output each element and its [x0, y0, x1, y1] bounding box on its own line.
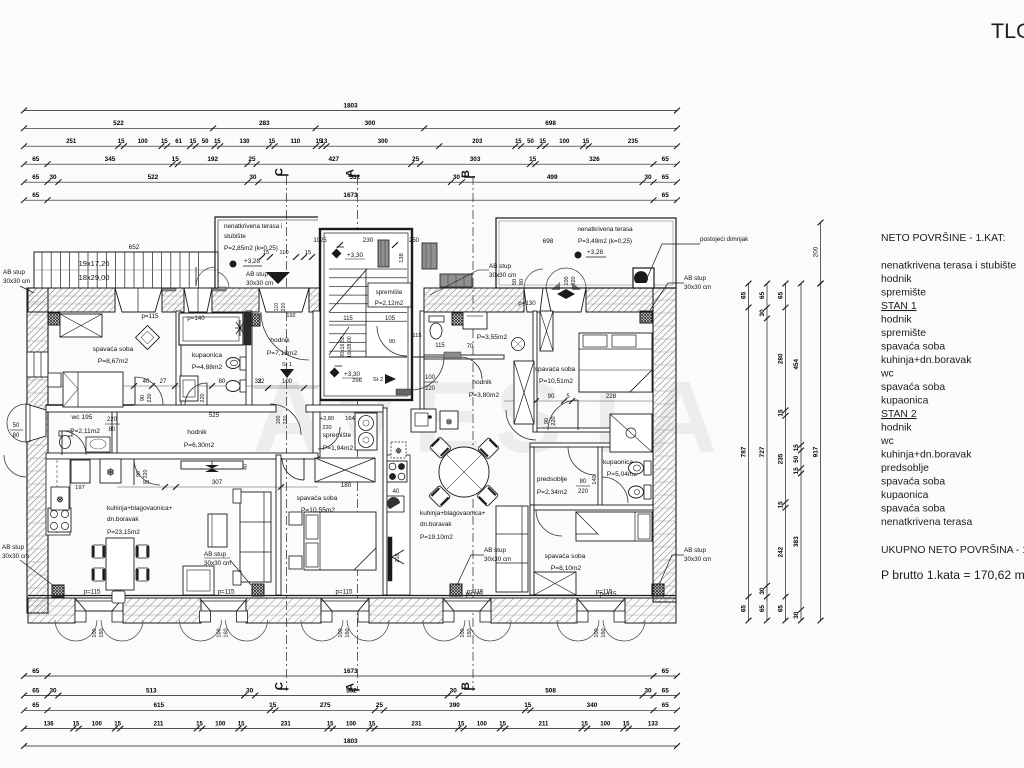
svg-text:25: 25: [376, 702, 384, 709]
svg-text:15: 15: [172, 156, 180, 163]
svg-text:p=140: p=140: [187, 315, 205, 322]
svg-text:15: 15: [529, 156, 537, 163]
svg-text:P=23,15m2: P=23,15m2: [107, 529, 140, 536]
svg-text:231: 231: [411, 721, 422, 727]
svg-text:15: 15: [539, 139, 546, 145]
svg-text:136: 136: [44, 721, 55, 727]
svg-text:spavaća soba: spavaća soba: [881, 342, 945, 353]
svg-text:90: 90: [389, 339, 395, 345]
svg-text:522: 522: [148, 174, 159, 181]
svg-text:kuhinja+blagovaonica+: kuhinja+blagovaonica+: [420, 510, 486, 517]
svg-text:80: 80: [580, 479, 587, 485]
svg-text:160: 160: [99, 628, 105, 637]
svg-text:P=2,34m2: P=2,34m2: [537, 489, 568, 496]
svg-text:15: 15: [793, 467, 800, 475]
svg-text:160: 160: [601, 628, 607, 637]
svg-text:307: 307: [212, 479, 223, 486]
svg-text:110: 110: [290, 139, 300, 145]
svg-text:100: 100: [559, 139, 570, 145]
svg-text:211: 211: [154, 721, 164, 727]
svg-text:326: 326: [589, 156, 600, 163]
svg-text:220: 220: [200, 393, 206, 402]
svg-text:nenatkrivena terasa: nenatkrivena terasa: [881, 517, 972, 528]
svg-text:220: 220: [578, 489, 589, 495]
svg-text:p=115: p=115: [336, 589, 353, 596]
svg-text:100: 100: [460, 628, 466, 637]
svg-text:spremište: spremište: [881, 328, 926, 339]
svg-text:TLOCRT: TLOCRT: [991, 19, 1024, 43]
svg-text:65: 65: [662, 156, 670, 163]
svg-text:698: 698: [543, 238, 554, 245]
svg-text:652: 652: [129, 244, 140, 251]
svg-text:65: 65: [32, 156, 40, 163]
svg-text:15: 15: [190, 139, 197, 145]
svg-text:15: 15: [499, 721, 506, 727]
svg-text:30x30 cm: 30x30 cm: [3, 278, 30, 285]
svg-text:110: 110: [274, 303, 280, 311]
svg-text:220: 220: [425, 386, 436, 392]
svg-text:15: 15: [581, 721, 588, 727]
svg-text:P=3,49m2 (k=0,25): P=3,49m2 (k=0,25): [578, 238, 632, 245]
svg-text:220: 220: [322, 425, 331, 431]
svg-text:25: 25: [412, 156, 420, 163]
svg-text:115: 115: [412, 333, 421, 339]
svg-text:40: 40: [143, 379, 150, 385]
svg-text:340: 340: [587, 702, 598, 709]
svg-text:65: 65: [662, 668, 670, 675]
svg-text:P=3,55m2: P=3,55m2: [477, 334, 508, 341]
svg-text:STAN 2: STAN 2: [881, 409, 917, 420]
svg-text:100: 100: [477, 721, 488, 727]
svg-text:427: 427: [328, 156, 339, 163]
svg-text:30: 30: [759, 309, 766, 317]
svg-text:220: 220: [107, 417, 118, 423]
svg-text:180: 180: [341, 482, 352, 489]
svg-text:65: 65: [741, 605, 748, 613]
svg-text:15: 15: [515, 139, 522, 145]
svg-text:15: 15: [793, 444, 800, 452]
svg-text:100: 100: [338, 628, 344, 637]
svg-text:spavaća soba: spavaća soba: [93, 346, 134, 353]
svg-text:hodnik: hodnik: [187, 429, 207, 436]
svg-text:❅: ❅: [395, 446, 403, 456]
svg-text:30: 30: [644, 174, 652, 181]
svg-text:40: 40: [393, 489, 400, 495]
svg-text:p=115: p=115: [466, 591, 483, 598]
svg-text:P=8,10m2: P=8,10m2: [551, 565, 582, 572]
svg-text:p=115: p=115: [84, 589, 101, 596]
svg-text:100: 100: [215, 721, 226, 727]
svg-text:242: 242: [778, 546, 785, 557]
svg-text:15: 15: [269, 702, 277, 709]
svg-text:283: 283: [259, 120, 270, 127]
svg-text:13: 13: [321, 139, 328, 145]
svg-text:30x30 cm: 30x30 cm: [684, 284, 711, 291]
svg-text:p=115: p=115: [600, 591, 617, 598]
svg-text:16x28,00: 16x28,00: [347, 336, 353, 357]
svg-text:+3,30: +3,30: [347, 252, 363, 259]
svg-text:231: 231: [281, 721, 292, 727]
svg-text:30: 30: [49, 174, 57, 181]
svg-text:522: 522: [113, 120, 124, 127]
svg-text:50: 50: [512, 279, 518, 285]
svg-text:hodnik: hodnik: [881, 274, 912, 285]
svg-text:90: 90: [140, 395, 146, 401]
svg-text:p=115: p=115: [142, 313, 159, 320]
svg-text:30: 30: [246, 687, 254, 694]
svg-text:1025: 1025: [313, 238, 327, 244]
svg-text:160: 160: [467, 628, 473, 637]
svg-text:25: 25: [248, 156, 256, 163]
svg-text:917: 917: [813, 446, 820, 457]
svg-text:787: 787: [741, 446, 748, 457]
svg-text:100: 100: [600, 721, 611, 727]
svg-text:138: 138: [399, 253, 405, 263]
svg-text:hodnik: hodnik: [472, 379, 492, 386]
svg-text:65: 65: [759, 291, 766, 299]
svg-text:1673: 1673: [343, 192, 358, 199]
svg-text:100: 100: [564, 276, 570, 285]
svg-text:130: 130: [239, 139, 250, 145]
svg-text:65: 65: [662, 174, 670, 181]
svg-text:P=2,85m2 (k=0,25): P=2,85m2 (k=0,25): [224, 245, 278, 252]
svg-text:275: 275: [320, 702, 331, 709]
svg-text:32: 32: [255, 379, 262, 385]
svg-text:wc: wc: [880, 436, 894, 447]
svg-text:1803: 1803: [343, 102, 358, 109]
svg-text:P=10,51m2: P=10,51m2: [539, 378, 573, 385]
svg-text:30x30 cm: 30x30 cm: [2, 553, 29, 560]
svg-text:dn.boravak: dn.boravak: [107, 516, 139, 523]
svg-text:+3,30: +3,30: [344, 371, 360, 378]
svg-text:18x29,00: 18x29,00: [79, 273, 110, 282]
svg-text:spavaća soba: spavaća soba: [297, 495, 338, 502]
svg-text:160: 160: [224, 628, 230, 637]
svg-text:220: 220: [147, 393, 153, 402]
svg-text:P=1,94m2: P=1,94m2: [323, 445, 354, 452]
svg-text:235: 235: [628, 139, 639, 145]
svg-text:100: 100: [217, 628, 223, 637]
svg-text:235: 235: [778, 453, 785, 464]
svg-text:250: 250: [409, 238, 420, 244]
svg-text:P=8,67m2: P=8,67m2: [98, 358, 129, 365]
svg-text:15: 15: [583, 139, 590, 145]
svg-text:65: 65: [778, 605, 785, 613]
svg-text:50: 50: [202, 139, 209, 145]
svg-text:AB stup: AB stup: [684, 547, 707, 554]
svg-text:525: 525: [209, 412, 220, 419]
svg-text:228: 228: [606, 393, 617, 400]
svg-text:203: 203: [472, 139, 483, 145]
svg-text:30x30 cm: 30x30 cm: [489, 272, 516, 279]
svg-text:30: 30: [759, 587, 766, 595]
svg-text:192: 192: [207, 156, 218, 163]
svg-text:AB stup: AB stup: [246, 271, 269, 278]
svg-text:727: 727: [759, 446, 766, 457]
svg-text:100: 100: [92, 721, 103, 727]
svg-text:kupaonica: kupaonica: [192, 352, 222, 359]
svg-text:wc 195: wc 195: [71, 414, 93, 421]
svg-text:AB stup: AB stup: [489, 263, 512, 270]
svg-text:stubište: stubište: [224, 233, 246, 240]
svg-text:AB stup: AB stup: [3, 269, 26, 276]
svg-text:hodnik: hodnik: [881, 315, 912, 326]
svg-text:p=115: p=115: [218, 589, 235, 596]
svg-text:50: 50: [527, 139, 534, 145]
svg-text:20x16,50: 20x16,50: [340, 336, 346, 357]
svg-text:predsoblje: predsoblje: [537, 476, 568, 483]
svg-text:615: 615: [153, 702, 164, 709]
svg-text:15: 15: [196, 721, 203, 727]
svg-text:454: 454: [793, 359, 800, 370]
svg-text:230: 230: [363, 237, 374, 244]
svg-text:80: 80: [219, 379, 226, 385]
svg-text:15: 15: [458, 721, 465, 727]
svg-text:80: 80: [13, 433, 20, 439]
svg-text:15: 15: [238, 721, 245, 727]
svg-text:nenatkrivena terasa i stubište: nenatkrivena terasa i stubište: [881, 261, 1016, 272]
svg-text:30x30 cm: 30x30 cm: [684, 556, 711, 563]
svg-text:15: 15: [778, 501, 785, 509]
svg-text:115: 115: [435, 343, 445, 349]
svg-text:p=130: p=130: [518, 300, 536, 307]
svg-text:197: 197: [75, 485, 85, 491]
svg-text:30: 30: [644, 687, 652, 694]
svg-text:+3,28: +3,28: [244, 258, 260, 265]
svg-text:140: 140: [592, 475, 598, 484]
svg-text:30x30 cm: 30x30 cm: [484, 556, 511, 563]
svg-text:65: 65: [32, 192, 40, 199]
svg-text:nenatkrivena terasa: nenatkrivena terasa: [577, 226, 633, 233]
svg-text:390: 390: [449, 702, 460, 709]
svg-text:65: 65: [32, 687, 40, 694]
svg-text:spremište: spremište: [376, 289, 403, 296]
svg-text:160: 160: [345, 628, 351, 637]
svg-text:NETO POVRŠINE - 1.KAT:: NETO POVRŠINE - 1.KAT:: [881, 231, 1005, 244]
svg-text:P=2,11m2: P=2,11m2: [70, 428, 100, 435]
svg-text:hodnik: hodnik: [881, 423, 912, 434]
svg-text:15: 15: [623, 721, 630, 727]
svg-text:dn.boravak: dn.boravak: [420, 521, 452, 528]
svg-text:30: 30: [249, 174, 257, 181]
svg-text:30: 30: [450, 687, 458, 694]
svg-text:AB stup: AB stup: [2, 544, 25, 551]
svg-text:220: 220: [281, 303, 287, 312]
svg-text:40: 40: [243, 464, 249, 470]
svg-text:50: 50: [13, 423, 20, 429]
svg-text:65: 65: [759, 605, 766, 613]
svg-text:P=7,18m2: P=7,18m2: [267, 350, 298, 357]
svg-text:100: 100: [346, 721, 357, 727]
svg-text:80: 80: [109, 427, 116, 433]
svg-text:15: 15: [369, 721, 376, 727]
svg-text:30: 30: [49, 687, 57, 694]
svg-text:65: 65: [741, 291, 748, 299]
svg-text:spavaća soba: spavaća soba: [881, 504, 945, 515]
svg-text:STAN 1: STAN 1: [881, 301, 917, 312]
svg-text:100: 100: [594, 628, 600, 637]
svg-text:15: 15: [161, 139, 168, 145]
svg-text:kuhinja+dn.boravak: kuhinja+dn.boravak: [881, 450, 972, 461]
svg-text:90: 90: [548, 394, 555, 400]
svg-text:100: 100: [282, 379, 293, 385]
svg-text:P=4,88m2: P=4,88m2: [192, 364, 223, 371]
svg-text:30x30 cm: 30x30 cm: [204, 560, 231, 567]
svg-text:19x17,26: 19x17,26: [79, 259, 110, 268]
svg-text:164: 164: [345, 416, 355, 422]
svg-text:spavaća soba: spavaća soba: [881, 477, 945, 488]
svg-text:192: 192: [286, 313, 295, 319]
svg-text:27: 27: [160, 379, 167, 385]
svg-text:133: 133: [648, 721, 659, 727]
svg-text:15: 15: [73, 721, 80, 727]
svg-text:P brutto 1.kata = 170,62 m2: P brutto 1.kata = 170,62 m2: [881, 568, 1024, 582]
svg-text:wc: wc: [880, 369, 894, 380]
svg-text:61: 61: [175, 139, 182, 145]
svg-text:200: 200: [813, 246, 820, 257]
svg-text:50: 50: [793, 455, 800, 463]
svg-text:predsoblje: predsoblje: [881, 463, 929, 474]
svg-text:300: 300: [365, 120, 376, 127]
svg-text:hodnik: hodnik: [270, 337, 290, 344]
svg-text:postojeći dimnjak: postojeći dimnjak: [700, 236, 749, 243]
svg-text:220: 220: [551, 416, 557, 425]
svg-text:65: 65: [662, 687, 670, 694]
svg-text:spavaća soba: spavaća soba: [881, 382, 945, 393]
svg-text:AB stup: AB stup: [484, 547, 507, 554]
svg-text:110: 110: [279, 250, 288, 256]
svg-text:1673: 1673: [343, 668, 358, 675]
svg-text:+3,28: +3,28: [587, 249, 603, 256]
svg-text:65: 65: [32, 702, 40, 709]
svg-text:kupaonica: kupaonica: [881, 396, 929, 407]
svg-text:698: 698: [545, 120, 556, 127]
svg-text:kuhinja+blagovaonica+: kuhinja+blagovaonica+: [107, 505, 173, 512]
svg-text:296: 296: [352, 378, 362, 384]
svg-text:kuhinja+dn.boravak: kuhinja+dn.boravak: [881, 355, 972, 366]
svg-text:kupaonica: kupaonica: [881, 490, 929, 501]
svg-text:100: 100: [92, 628, 98, 637]
svg-text:211: 211: [539, 721, 549, 727]
svg-text:65: 65: [32, 668, 40, 675]
svg-text:❅: ❅: [445, 417, 453, 427]
svg-text:nenatkrivena terasa i: nenatkrivena terasa i: [224, 223, 282, 230]
svg-text:303: 303: [470, 156, 481, 163]
svg-text:90: 90: [136, 471, 142, 477]
svg-text:30: 30: [793, 611, 800, 619]
svg-text:80: 80: [519, 279, 525, 285]
svg-text:❅: ❅: [106, 467, 115, 479]
svg-text:❅: ❅: [56, 495, 64, 506]
svg-text:P=6,30m2: P=6,30m2: [184, 442, 215, 449]
svg-text:spavaća soba: spavaća soba: [545, 553, 586, 560]
svg-text:65: 65: [662, 192, 670, 199]
svg-text:218: 218: [395, 553, 401, 562]
svg-text:spavaća soba: spavaća soba: [535, 366, 576, 373]
svg-text:65: 65: [662, 702, 670, 709]
svg-text:15: 15: [268, 139, 275, 145]
svg-text:499: 499: [547, 174, 558, 181]
svg-text:15: 15: [114, 721, 121, 727]
svg-text:508: 508: [545, 687, 556, 694]
svg-text:kupaonica: kupaonica: [603, 459, 633, 466]
svg-text:1803: 1803: [343, 738, 358, 745]
svg-text:+2,80: +2,80: [320, 416, 334, 422]
svg-text:65: 65: [778, 291, 785, 299]
svg-text:15: 15: [214, 139, 221, 145]
svg-text:115: 115: [343, 316, 353, 322]
svg-text:105: 105: [385, 316, 396, 322]
svg-text:100: 100: [276, 416, 282, 425]
svg-text:300: 300: [378, 139, 389, 145]
svg-text:St 1: St 1: [282, 362, 292, 368]
svg-text:280: 280: [778, 353, 785, 364]
svg-text:513: 513: [146, 687, 157, 694]
svg-text:15: 15: [524, 702, 532, 709]
svg-text:65: 65: [32, 174, 40, 181]
svg-text:30x30 cm: 30x30 cm: [246, 280, 273, 287]
svg-text:P=2,12m2: P=2,12m2: [375, 300, 404, 307]
svg-text:St 2: St 2: [373, 377, 383, 383]
svg-text:AB stup: AB stup: [204, 551, 227, 558]
svg-text:15: 15: [327, 721, 334, 727]
svg-text:70: 70: [467, 344, 474, 350]
svg-text:P=19,10m2: P=19,10m2: [420, 534, 453, 541]
svg-text:383: 383: [793, 536, 800, 547]
svg-text:UKUPNO NETO POVRŠINA - 1.KAT: UKUPNO NETO POVRŠINA - 1.KAT: [881, 543, 1024, 556]
svg-text:345: 345: [105, 156, 116, 163]
svg-text:AB stup: AB stup: [684, 275, 707, 282]
svg-text:P=3,80m2: P=3,80m2: [469, 392, 500, 399]
svg-text:100: 100: [138, 139, 149, 145]
svg-text:220: 220: [283, 416, 289, 425]
svg-text:15: 15: [118, 139, 125, 145]
svg-text:220: 220: [143, 470, 149, 479]
svg-text:spremište: spremište: [881, 288, 926, 299]
svg-text:15: 15: [778, 409, 785, 417]
svg-text:251: 251: [66, 139, 77, 145]
